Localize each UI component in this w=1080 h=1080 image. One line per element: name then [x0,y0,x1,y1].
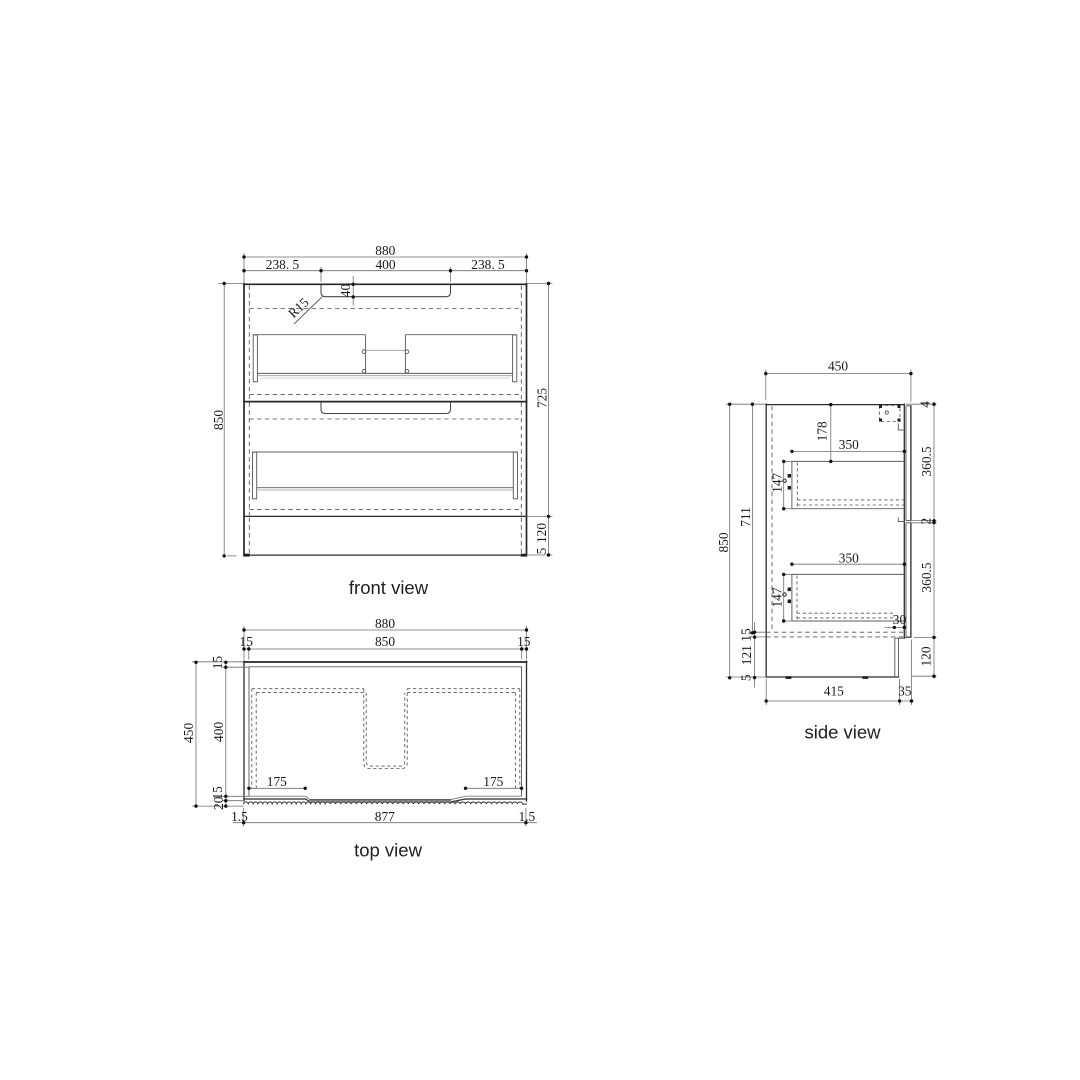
svg-text:4: 4 [918,401,933,408]
svg-text:147: 147 [770,472,785,492]
svg-text:1.5: 1.5 [231,809,248,824]
svg-text:711: 711 [738,507,753,527]
svg-text:415: 415 [824,684,844,699]
svg-text:880: 880 [375,616,395,631]
svg-text:175: 175 [483,774,503,789]
svg-text:121: 121 [739,645,754,665]
svg-text:120: 120 [534,523,549,543]
svg-text:top view: top view [354,840,423,861]
svg-text:350: 350 [839,550,859,565]
svg-text:400: 400 [211,722,226,742]
svg-text:front view: front view [349,577,429,598]
svg-text:120: 120 [919,646,934,666]
svg-text:15: 15 [738,628,753,642]
svg-text:238. 5: 238. 5 [266,257,300,272]
svg-text:880: 880 [375,243,395,258]
svg-text:40: 40 [338,284,353,298]
svg-text:2: 2 [919,518,934,525]
svg-text:15: 15 [240,634,254,649]
svg-text:178: 178 [814,421,829,441]
svg-text:450: 450 [181,723,196,743]
svg-text:850: 850 [716,532,731,552]
svg-text:side view: side view [804,722,881,743]
svg-text:877: 877 [375,809,395,824]
svg-text:15: 15 [517,634,531,649]
svg-text:725: 725 [534,388,549,408]
svg-text:20: 20 [211,796,226,810]
svg-text:450: 450 [828,359,848,374]
svg-text:238. 5: 238. 5 [471,257,505,272]
svg-text:400: 400 [375,257,395,272]
svg-text:147: 147 [770,587,785,607]
svg-text:360.5: 360.5 [919,446,934,476]
svg-text:175: 175 [267,774,287,789]
svg-text:850: 850 [375,634,395,649]
svg-text:35: 35 [898,684,912,699]
svg-text:360.5: 360.5 [919,562,934,592]
svg-text:5: 5 [534,547,549,554]
svg-text:15: 15 [210,656,225,670]
svg-text:850: 850 [211,410,226,430]
svg-text:30: 30 [893,612,907,627]
svg-text:350: 350 [839,437,859,452]
svg-text:5: 5 [739,674,754,681]
